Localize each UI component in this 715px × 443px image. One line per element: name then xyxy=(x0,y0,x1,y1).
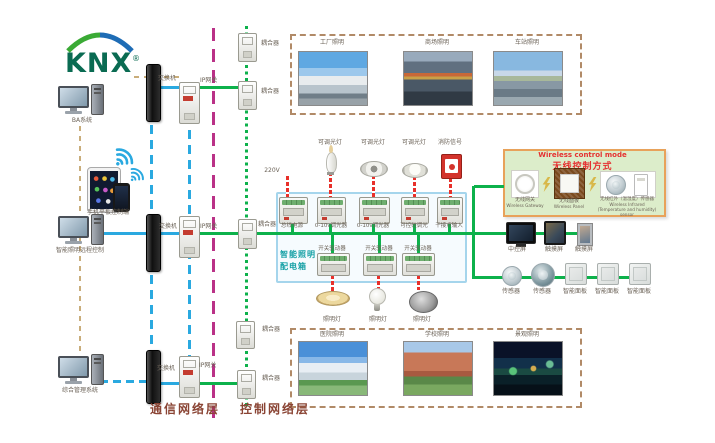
coupler-label: 耦合器 xyxy=(261,41,279,48)
smart-panel-icon-1 xyxy=(565,263,587,285)
switch-bottom xyxy=(146,350,161,404)
dim-lamp3-line xyxy=(413,176,416,198)
computer-ba-system xyxy=(58,84,104,118)
knx-line-bottom xyxy=(197,382,239,385)
cabinet-title-line1: 智能照明 xyxy=(280,249,316,260)
smart-panel-icon-2 xyxy=(597,263,619,285)
sensor-icon-1 xyxy=(502,266,522,286)
knx-logo-text: KNX xyxy=(65,48,132,76)
switch-label: 交换机 xyxy=(159,224,177,231)
dimmable-lamp-candle-icon xyxy=(326,152,337,173)
wireless-sensor-icon xyxy=(600,171,656,198)
pc-to-switch-line-bottom xyxy=(100,380,147,383)
application-label-factory: 工厂照明 xyxy=(314,40,350,47)
triac-dimmer-label: 可控硅调光 xyxy=(394,223,434,229)
zap-icon xyxy=(587,177,598,192)
lamp1-line xyxy=(331,275,334,291)
power-220v-label: 220V xyxy=(258,168,286,175)
switch-driver-label: 开关驱动器 xyxy=(312,246,352,252)
power-220v-line xyxy=(286,176,289,198)
monitor-icon xyxy=(58,356,89,378)
coupler-label: 耦合器 xyxy=(261,89,279,96)
wireless-branch-line xyxy=(474,185,504,188)
fire-alarm-icon xyxy=(441,154,462,179)
mobile-label: 手机平板控制端 xyxy=(63,210,153,217)
smart-panel-label: 智能面板 xyxy=(625,289,653,296)
gateway-label: IP网关 xyxy=(200,224,217,231)
coupler-1 xyxy=(238,33,257,62)
touch-screen-small-icon xyxy=(577,223,593,246)
lamp-label: 照明灯 xyxy=(404,317,440,324)
gateway-label: IP网关 xyxy=(199,363,216,370)
pc-to-switch-line xyxy=(97,232,147,235)
central-screen-label: 中控屏 xyxy=(503,247,531,254)
dimmer-module-1 xyxy=(317,197,346,224)
photo-factory xyxy=(298,51,368,106)
sensor-label: 传感器 xyxy=(497,289,525,296)
monitor-icon xyxy=(58,216,89,238)
fire-signal-label: 消防信号 xyxy=(432,140,468,147)
lamp-label: 照明灯 xyxy=(314,317,350,324)
bulb-lamp-icon xyxy=(369,288,386,305)
application-label-landscape: 景观照明 xyxy=(509,332,545,339)
computer-management xyxy=(58,354,104,388)
smart-panel-label: 智能面板 xyxy=(593,289,621,296)
application-label-hospital: 医院照明 xyxy=(314,332,350,339)
coupler-3 xyxy=(238,219,257,249)
dimmer-label: 0-10v调光器 xyxy=(311,223,351,229)
touch-screen-label: 触摸屏 xyxy=(570,247,598,254)
knx-logo: KNX ® xyxy=(58,30,142,76)
gateway-label: IP网关 xyxy=(200,78,217,85)
zap-icon xyxy=(541,177,552,192)
ip-gateway-top xyxy=(179,82,200,124)
dimmable-lamp-label: 可调光灯 xyxy=(396,140,432,147)
lamp3-line xyxy=(417,275,420,290)
dimmer-label: 0-10v调光器 xyxy=(353,223,393,229)
switch-driver-label: 开关驱动器 xyxy=(398,246,438,252)
coupler-5 xyxy=(237,370,256,399)
switch-gateway-link-bottom xyxy=(159,382,180,385)
photo-hospital xyxy=(298,341,368,396)
management-label: 综合管理系统 xyxy=(40,388,120,395)
touch-screen-label: 触摸屏 xyxy=(540,247,568,254)
photo-landscape xyxy=(493,341,563,396)
dimmable-lamp-label: 可调光灯 xyxy=(312,140,348,147)
switch-label: 交换机 xyxy=(157,366,175,373)
coupler-label: 耦合器 xyxy=(262,327,280,334)
ip-gateway-mid xyxy=(179,216,200,258)
sensor-icon-2 xyxy=(531,263,555,287)
coupler-label: 耦合器 xyxy=(262,376,280,383)
photo-mall xyxy=(403,51,473,106)
ceiling-lamp-icon xyxy=(316,291,350,306)
lamp-label: 照明灯 xyxy=(360,317,396,324)
knx-line-top xyxy=(198,86,242,89)
wireless-device-label-en: Wireless Gateway xyxy=(501,204,549,209)
cabinet-title-line2: 配电箱 xyxy=(280,261,307,272)
application-label-school: 学校照明 xyxy=(419,332,455,339)
switch-driver-1 xyxy=(317,253,350,276)
smart-panel-icon-3 xyxy=(629,263,651,285)
switch-label: 交换机 xyxy=(158,76,176,83)
dimmable-domelight-icon xyxy=(402,163,428,178)
bus-power-module xyxy=(279,197,308,224)
ip-gateway-bottom xyxy=(179,356,200,398)
control-layer-label: 控制网络层 xyxy=(240,400,310,417)
terminal-trunk-line xyxy=(472,186,475,279)
communication-layer-label: 通信网络层 xyxy=(150,400,220,417)
application-label-station: 车站照明 xyxy=(509,40,545,47)
dimmable-downlight-icon xyxy=(360,161,388,177)
phone-icon xyxy=(113,183,130,212)
ba-system-label: BA系统 xyxy=(42,118,122,125)
tower-icon xyxy=(91,84,104,115)
touch-screen-icon xyxy=(544,221,566,245)
smart-panel-label: 智能面板 xyxy=(561,289,589,296)
wireless-title-en: Wireless control mode xyxy=(505,151,660,159)
coupler-4 xyxy=(236,321,255,349)
fire-signal-line xyxy=(449,178,452,198)
switch-driver-label: 开关驱动器 xyxy=(359,246,399,252)
wireless-panel-icon xyxy=(554,168,585,199)
dim-lamp2-line xyxy=(372,175,375,198)
switch-gateway-link-mid xyxy=(159,232,180,235)
bus-power-label: 总线电源 xyxy=(272,223,312,229)
sensor-label: 传感器 xyxy=(528,289,556,296)
coupler-2 xyxy=(238,81,257,110)
dimmable-lamp-label: 可调光灯 xyxy=(355,140,391,147)
wireless-device-label-en: Wireless Panel xyxy=(547,205,591,210)
dry-contact-module xyxy=(437,197,463,224)
monitor-icon xyxy=(58,86,89,108)
dry-contact-label: 干接点输入 xyxy=(429,223,469,229)
spot-lamp-icon xyxy=(409,291,438,313)
switch-driver-3 xyxy=(402,253,435,276)
dimmer-module-2 xyxy=(359,197,390,224)
lamp2-line xyxy=(377,275,380,289)
remote-control-label: 智能照明远程控制 xyxy=(35,248,125,255)
wireless-device-label-en: Wireless Infrared (Temperature and humid… xyxy=(597,203,657,217)
photo-station xyxy=(493,51,563,106)
triac-dimmer-module xyxy=(401,197,429,224)
tower-icon xyxy=(91,214,104,245)
computer-remote-control xyxy=(58,214,104,248)
switch-gateway-link-top xyxy=(159,86,180,89)
wireless-gateway-icon xyxy=(511,170,539,198)
mobile-devices xyxy=(85,145,150,211)
switch-top xyxy=(146,64,161,122)
dim-lamp1-line xyxy=(329,172,332,198)
application-label-mall: 商场照明 xyxy=(419,40,455,47)
photo-school xyxy=(403,341,473,396)
knx-logo-registered: ® xyxy=(132,54,140,63)
knx-lighting-system-diagram: KNX ® xyxy=(0,0,715,443)
switch-driver-2 xyxy=(363,253,397,276)
central-screen-icon xyxy=(506,222,536,244)
tower-icon xyxy=(91,354,104,385)
